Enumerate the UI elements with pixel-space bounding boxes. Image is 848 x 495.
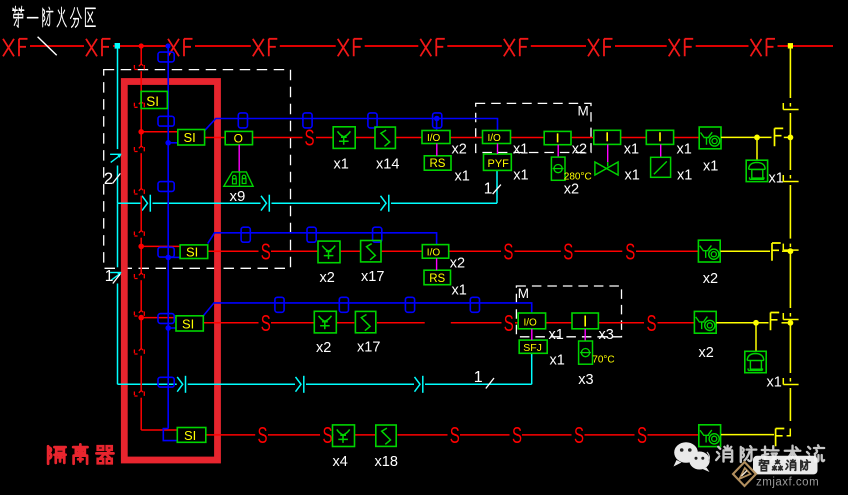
svg-text:x3: x3 (578, 372, 593, 388)
svg-text:RS: RS (429, 273, 445, 285)
svg-text:2: 2 (104, 169, 113, 188)
svg-text:x2: x2 (316, 340, 331, 356)
svg-text:x14: x14 (376, 156, 399, 172)
svg-text:x2: x2 (452, 142, 467, 158)
svg-text:zmjaxf.com: zmjaxf.com (756, 477, 819, 489)
svg-text:1: 1 (474, 369, 483, 386)
svg-text:RS: RS (430, 158, 446, 170)
svg-text:70°C: 70°C (592, 355, 614, 366)
svg-text:x17: x17 (361, 269, 384, 285)
svg-text:x2: x2 (572, 142, 587, 158)
svg-text:SI: SI (182, 317, 194, 332)
svg-text:SI: SI (184, 130, 196, 145)
svg-text:SI: SI (146, 94, 159, 109)
svg-text:x1: x1 (703, 159, 718, 175)
svg-text:M: M (518, 286, 529, 301)
svg-text:PYF: PYF (488, 158, 510, 170)
svg-text:x1: x1 (513, 168, 528, 184)
svg-text:x2: x2 (320, 270, 335, 286)
svg-text:x2: x2 (564, 182, 579, 198)
svg-text:1: 1 (484, 181, 493, 198)
svg-text:SI: SI (186, 245, 198, 260)
svg-text:x18: x18 (375, 454, 398, 470)
svg-text:x1: x1 (625, 168, 640, 184)
svg-text:O: O (234, 132, 243, 146)
svg-text:M: M (578, 104, 589, 119)
svg-text:x1: x1 (767, 374, 782, 390)
svg-text:I/O: I/O (427, 133, 441, 144)
svg-text:x1: x1 (334, 156, 349, 172)
svg-text:x1: x1 (550, 352, 565, 368)
svg-text:x1: x1 (677, 168, 692, 184)
svg-text:SI: SI (184, 428, 196, 443)
svg-text:x1: x1 (769, 171, 784, 187)
svg-text:SFJ: SFJ (523, 342, 542, 354)
svg-text:x1: x1 (624, 142, 639, 158)
svg-text:x17: x17 (357, 340, 380, 356)
svg-text:I/O: I/O (488, 133, 502, 144)
svg-text:1: 1 (105, 268, 114, 285)
svg-text:x9: x9 (230, 188, 246, 205)
svg-text:I/O: I/O (524, 318, 538, 329)
svg-text:x1: x1 (452, 283, 467, 299)
svg-text:x1: x1 (549, 327, 564, 343)
svg-text:x1: x1 (455, 169, 470, 185)
svg-text:x1: x1 (677, 142, 692, 158)
svg-text:x2: x2 (703, 271, 718, 287)
svg-text:x2: x2 (699, 345, 714, 361)
svg-text:x4: x4 (333, 454, 348, 470)
svg-text:I/O: I/O (427, 247, 441, 258)
svg-text:x1: x1 (513, 142, 528, 158)
svg-text:x2: x2 (450, 255, 465, 271)
svg-text:x3: x3 (599, 327, 614, 343)
